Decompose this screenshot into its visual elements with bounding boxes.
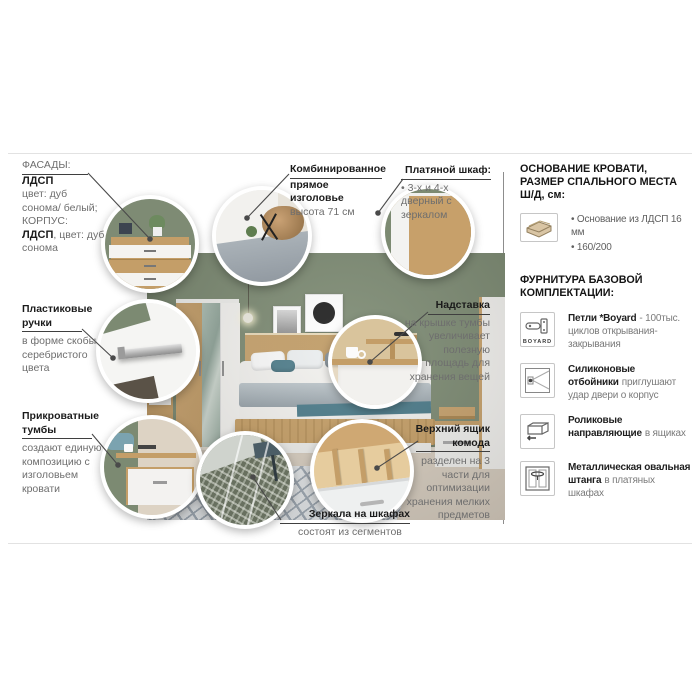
label-top-drawer: Верхний ящик комода разделен на 3 части … xyxy=(398,423,490,523)
hinge-icon: BOYARD xyxy=(520,312,555,347)
bed-base-bullet: • 160/200 xyxy=(571,241,692,254)
corpus-heading: КОРПУС: xyxy=(22,215,106,229)
drawer-roller-icon xyxy=(520,414,555,449)
label-mirrors: Зеркала на шкафах состоят из сегментов xyxy=(280,508,412,539)
label-handles: Пластиковые ручки в форме скобы серебрис… xyxy=(22,303,106,376)
hardware-item: BOYARD Петли *Boyard- 100тыс. циклов отк… xyxy=(520,312,692,351)
callout-circle-nightstand xyxy=(100,415,204,519)
facades-material: ЛДСП xyxy=(22,175,106,189)
furniture-infographic: ФАСАДЫ: ЛДСП цвет: дуб сонома/ белый; КО… xyxy=(0,0,700,700)
label-shelf-topper: Надставка на крышке тумбы увеличивает по… xyxy=(400,299,490,384)
corpus-line: ЛДСП, цвет: дуб сонома xyxy=(22,229,106,256)
hardware-item: Роликовые направляющиев ящиках xyxy=(520,414,692,449)
top-divider xyxy=(8,153,692,154)
door-bumper-icon xyxy=(520,363,555,398)
callout-circle-chest xyxy=(101,195,199,293)
bed-base-title: ОСНОВАНИЕ КРОВАТИ, РАЗМЕР СПАЛЬНОГО МЕСТ… xyxy=(520,163,692,203)
spec-sidebar: ОСНОВАНИЕ КРОВАТИ, РАЗМЕР СПАЛЬНОГО МЕСТ… xyxy=(520,163,692,500)
bed-base-row: • Основание из ЛДСП 16 мм • 160/200 xyxy=(520,213,692,256)
bottom-divider xyxy=(8,543,692,544)
bed-base-bullet: • Основание из ЛДСП 16 мм xyxy=(571,213,692,239)
hardware-title: ФУРНИТУРА БАЗОВОЙ КОМПЛЕКТАЦИИ: xyxy=(520,274,692,300)
label-nightstands: Прикроватные тумбы создают единую композ… xyxy=(22,410,106,496)
label-wardrobe: Платяной шкаф: • 3-х и 4-х дверный с зер… xyxy=(401,164,493,222)
callout-circle-handle xyxy=(96,299,200,403)
bed-base-icon xyxy=(520,213,558,242)
facades-material-desc: цвет: дуб сонома/ белый; xyxy=(22,188,106,215)
hardware-item: Силиконовые отбойникиприглушают удар две… xyxy=(520,363,692,402)
facades-heading: ФАСАДЫ: xyxy=(22,159,88,175)
label-facades: ФАСАДЫ: ЛДСП цвет: дуб сонома/ белый; КО… xyxy=(22,159,106,256)
hardware-item: Металлическая овальная штангав платяных … xyxy=(520,461,692,500)
wardrobe-rod-icon xyxy=(520,461,555,496)
label-headboard: Комбинированное прямое изголовье высота … xyxy=(290,163,384,219)
